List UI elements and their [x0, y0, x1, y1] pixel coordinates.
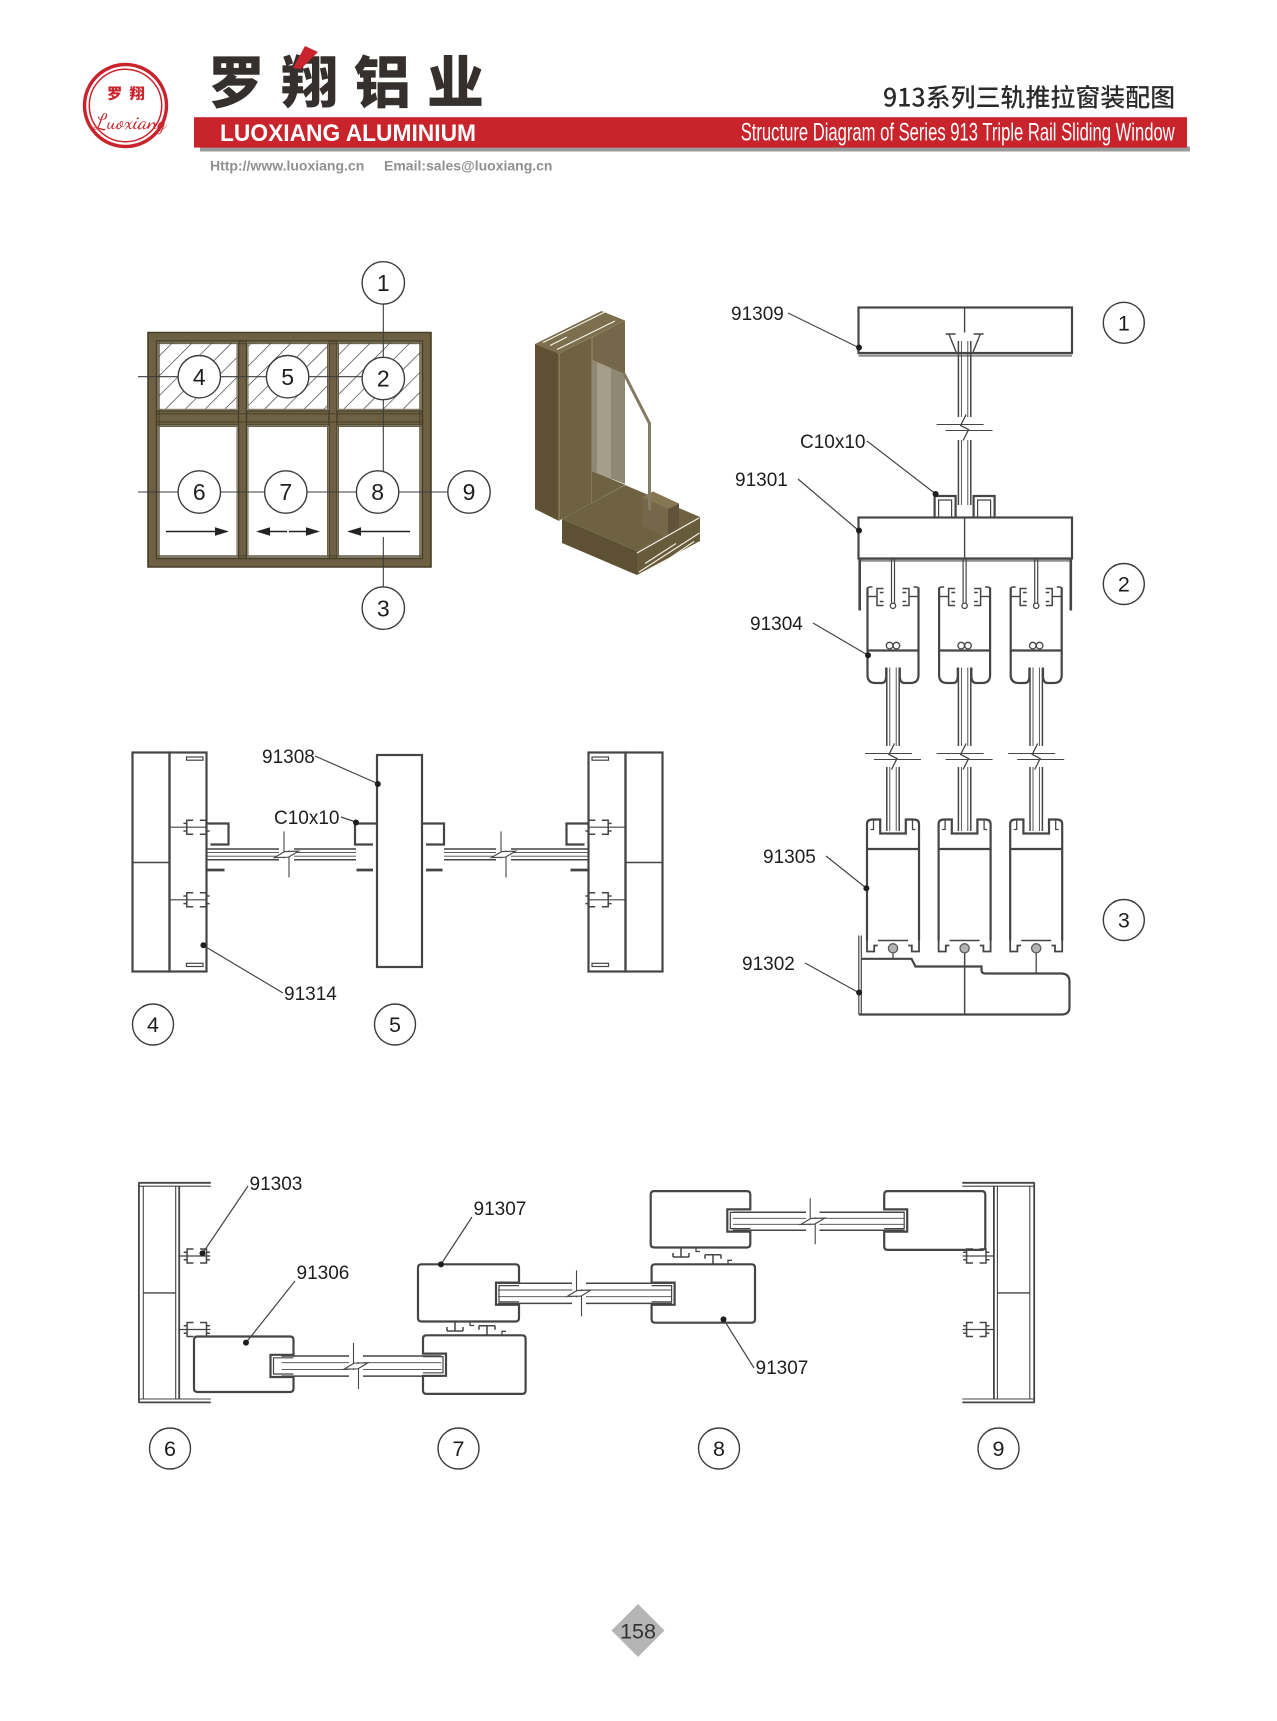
svg-text:Email:sales@luoxiang.cn: Email:sales@luoxiang.cn	[384, 158, 553, 174]
svg-text:C10x10: C10x10	[274, 808, 340, 829]
svg-text:91304: 91304	[750, 614, 803, 635]
svg-text:5: 5	[281, 364, 294, 390]
svg-text:6: 6	[164, 1437, 176, 1461]
svg-text:91306: 91306	[297, 1263, 350, 1284]
svg-text:8: 8	[371, 479, 384, 505]
svg-text:9: 9	[463, 479, 476, 505]
svg-text:7: 7	[453, 1437, 465, 1461]
svg-text:91307: 91307	[474, 1199, 527, 1220]
svg-text:5: 5	[389, 1013, 401, 1037]
svg-text:4: 4	[193, 364, 206, 390]
svg-text:9: 9	[993, 1437, 1005, 1461]
svg-text:2: 2	[1118, 573, 1130, 597]
svg-text:91308: 91308	[262, 747, 315, 768]
svg-text:158: 158	[620, 1619, 656, 1643]
svg-text:7: 7	[279, 479, 292, 505]
svg-text:8: 8	[713, 1437, 725, 1461]
svg-text:91309: 91309	[731, 304, 784, 325]
svg-text:LUOXIANG ALUMINIUM: LUOXIANG ALUMINIUM	[220, 120, 476, 147]
svg-text:91305: 91305	[763, 847, 816, 868]
svg-text:1: 1	[1118, 311, 1130, 335]
svg-text:4: 4	[147, 1013, 159, 1037]
svg-text:91302: 91302	[742, 954, 795, 975]
svg-text:Http://www.luoxiang.cn: Http://www.luoxiang.cn	[210, 158, 364, 174]
svg-text:91314: 91314	[284, 984, 337, 1005]
svg-text:3: 3	[377, 595, 390, 621]
svg-text:2: 2	[377, 366, 390, 392]
svg-text:C10x10: C10x10	[800, 432, 866, 453]
svg-text:91303: 91303	[250, 1174, 303, 1195]
svg-text:3: 3	[1118, 909, 1130, 933]
svg-text:Structure Diagram of Series 91: Structure Diagram of Series 913 Triple R…	[741, 120, 1175, 147]
svg-text:91301: 91301	[735, 470, 788, 491]
svg-text:91307: 91307	[756, 1358, 809, 1379]
svg-text:6: 6	[193, 479, 206, 505]
svg-text:1: 1	[377, 270, 390, 296]
